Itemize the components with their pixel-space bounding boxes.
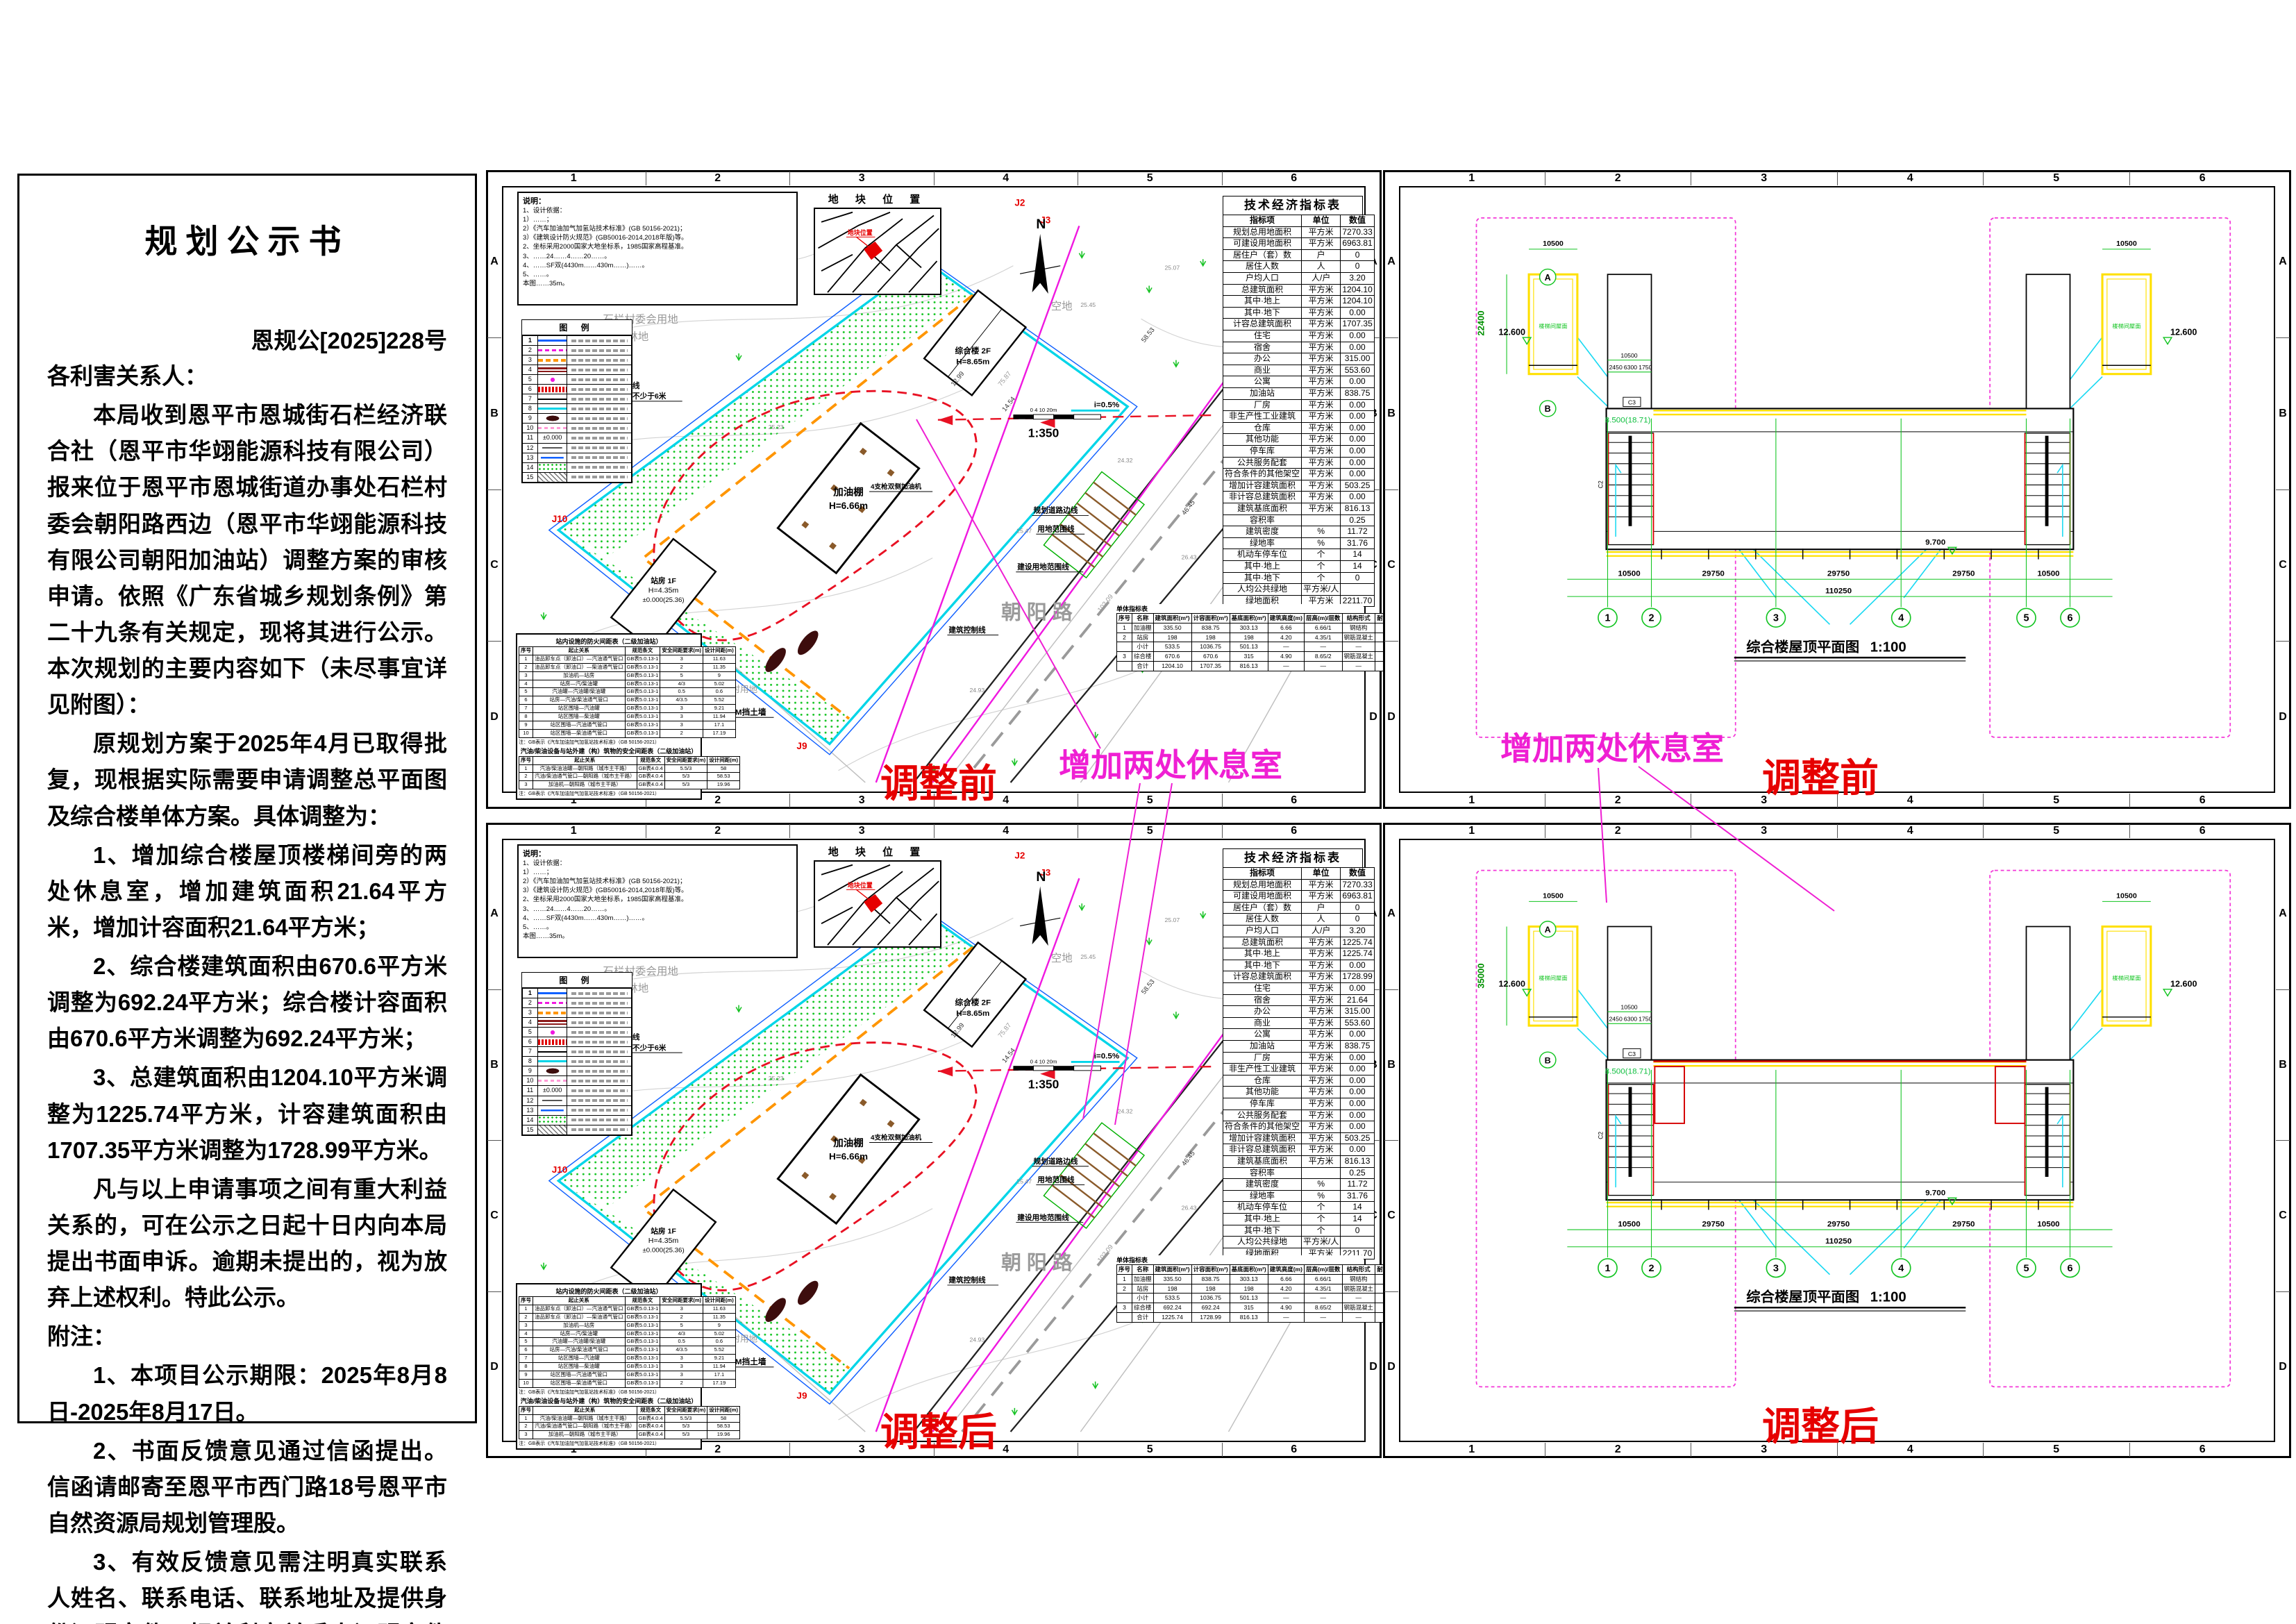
- left-height-dimension: 22400: [1476, 310, 1486, 335]
- legend-table: 1234567891011±0.00012131415: [522, 335, 632, 483]
- fire-table-external: 序号起止关系规范条文安全间距要求(m)设计间距(m)1汽油/柴油油罐—朝阳路（城…: [519, 756, 740, 790]
- frame-rows-left: ABCD: [487, 186, 501, 793]
- appendix-label: 附注：: [47, 1319, 447, 1355]
- fire-distance-block: 站内设施的防火间距表（二级加油站） 序号起止关系规范条文安全间距要求(m)设计间…: [516, 1283, 702, 1450]
- paragraph-5: 3、总建筑面积由1204.10平方米调整为1225.74平方米，计容建筑面积由1…: [47, 1060, 447, 1168]
- notice-panel: 规划公示书 恩规公[2025]228号 各利害关系人： 本局收到恩平市恩城街石栏…: [17, 174, 477, 1423]
- design-notes: 说明： 1、设计依据：1）……；2）《汽车加油加气加氢站技术标准》(GB 501…: [517, 844, 798, 958]
- frame-rows-right: ABCD: [2276, 186, 2290, 793]
- frame-rows-left: ABCD: [1384, 186, 1398, 793]
- left-height-dimension: 35000: [1476, 963, 1486, 988]
- frame-cols-top: 123456: [1399, 171, 2275, 185]
- frame-rows-right: ABCD: [2276, 839, 2290, 1442]
- paragraph-3: 1、增加综合楼屋顶楼梯间旁的两处休息室，增加建筑面积21.64平方米，增加计容面…: [47, 837, 447, 946]
- doc-number: 恩规公[2025]228号: [47, 322, 447, 355]
- design-notes: 说明： 1、设计依据：1）……；2）《汽车加油加气加氢站技术标准》(GB 501…: [517, 192, 798, 305]
- frame-cols-top: 123456: [502, 824, 1366, 838]
- legend: 图 例 1234567891011±0.00012131415: [521, 319, 632, 483]
- frame-cols-bottom: 123456: [1399, 794, 2275, 807]
- paragraph-4: 2、综合楼建筑面积由670.6平方米调整为692.24平方米；综合楼计容面积由6…: [47, 948, 447, 1057]
- fire-table-internal: 序号起止关系规范条文安全间距要求(m)设计间距(m)1油品卸车点（卸油口）—汽油…: [519, 646, 736, 738]
- fire-distance-block: 站内设施的防火间距表（二级加油站） 序号起止关系规范条文安全间距要求(m)设计间…: [516, 633, 702, 800]
- roofplan-sheet-after: 123456 123456 ABCD ABCD 35000: [1383, 823, 2291, 1458]
- inset-title: 地 块 位 置: [813, 192, 942, 206]
- frame-cols-bottom: 123456: [1399, 1443, 2275, 1457]
- siteplan-sheet-after: 123456 123456 ABCD ABCD 说明： 1、设计依据：1）……；…: [486, 823, 1382, 1458]
- frame-cols-top: 123456: [1399, 824, 2275, 838]
- notice-title: 规划公示书: [47, 215, 447, 262]
- roofplan-sheet-before: 123456 123456 ABCD ABCD 22400: [1383, 170, 2291, 809]
- location-inset: 地 块 位 置: [813, 844, 942, 948]
- fire-table-external: 序号起止关系规范条文安全间距要求(m)设计间距(m)1汽油/柴油油罐—朝阳路（城…: [519, 1406, 740, 1440]
- salutation: 各利害关系人：: [47, 358, 447, 394]
- tech-indicator-table: 指标项单位数值规划总用地面积平方米7270.33可建设用地面积平方米6963.8…: [1223, 867, 1375, 1259]
- legend-table: 1234567891011±0.00012131415: [522, 988, 632, 1135]
- tech-indicator-block: 技术经济指标表 指标项单位数值规划总用地面积平方米7270.33可建设用地面积平…: [1223, 196, 1363, 607]
- inset-title: 地 块 位 置: [813, 844, 942, 859]
- frame-rows-left: ABCD: [1384, 839, 1398, 1442]
- paragraph-1: 本局收到恩平市恩城街石栏经济联合社（恩平市华翊能源科技有限公司）报来位于恩平市恩…: [47, 397, 447, 723]
- building-schedule-block: 单体指标表 序号名称建筑面积(m²)计容面积(m²)基底面积(m²)建筑高度(m…: [1116, 1255, 1364, 1323]
- frame-rows-left: ABCD: [487, 839, 501, 1442]
- tech-indicator-table: 指标项单位数值规划总用地面积平方米7270.33可建设用地面积平方米6963.8…: [1223, 215, 1375, 607]
- note-1: 1、本项目公示期限：2025年8月8日-2025年8月17日。: [47, 1357, 447, 1430]
- tech-indicator-block: 技术经济指标表 指标项单位数值规划总用地面积平方米7270.33可建设用地面积平…: [1223, 848, 1363, 1259]
- paragraph-6: 凡与以上申请事项之间有重大利益关系的，可在公示之日起十日内向本局提出书面申诉。逾…: [47, 1171, 447, 1316]
- legend: 图 例 1234567891011±0.00012131415: [521, 972, 632, 1136]
- siteplan-sheet-before: 123456 123456 ABCD ABCD 说明： 1、设计依据：1）……；…: [486, 170, 1382, 809]
- note-2: 2、书面反馈意见通过信函提出。信函请邮寄至恩平市西门路18号恩平市自然资源局规划…: [47, 1433, 447, 1541]
- note-3: 3、有效反馈意见需注明真实联系人姓名、联系电话、联系地址及提供身份证明文件、相关…: [47, 1544, 447, 1624]
- paragraph-2: 原规划方案于2025年4月已取得批复，现根据实际需要申请调整总平面图及综合楼单体…: [47, 726, 447, 834]
- fire-table-internal: 序号起止关系规范条文安全间距要求(m)设计间距(m)1油品卸车点（卸油口）—汽油…: [519, 1296, 736, 1388]
- location-inset: 地 块 位 置: [813, 192, 942, 295]
- frame-cols-top: 123456: [502, 171, 1366, 185]
- building-schedule-block: 单体指标表 序号名称建筑面积(m²)计容面积(m²)基底面积(m²)建筑高度(m…: [1116, 604, 1364, 671]
- planning-notice-poster: 规划公示书 恩规公[2025]228号 各利害关系人： 本局收到恩平市恩城街石栏…: [0, 0, 2296, 1624]
